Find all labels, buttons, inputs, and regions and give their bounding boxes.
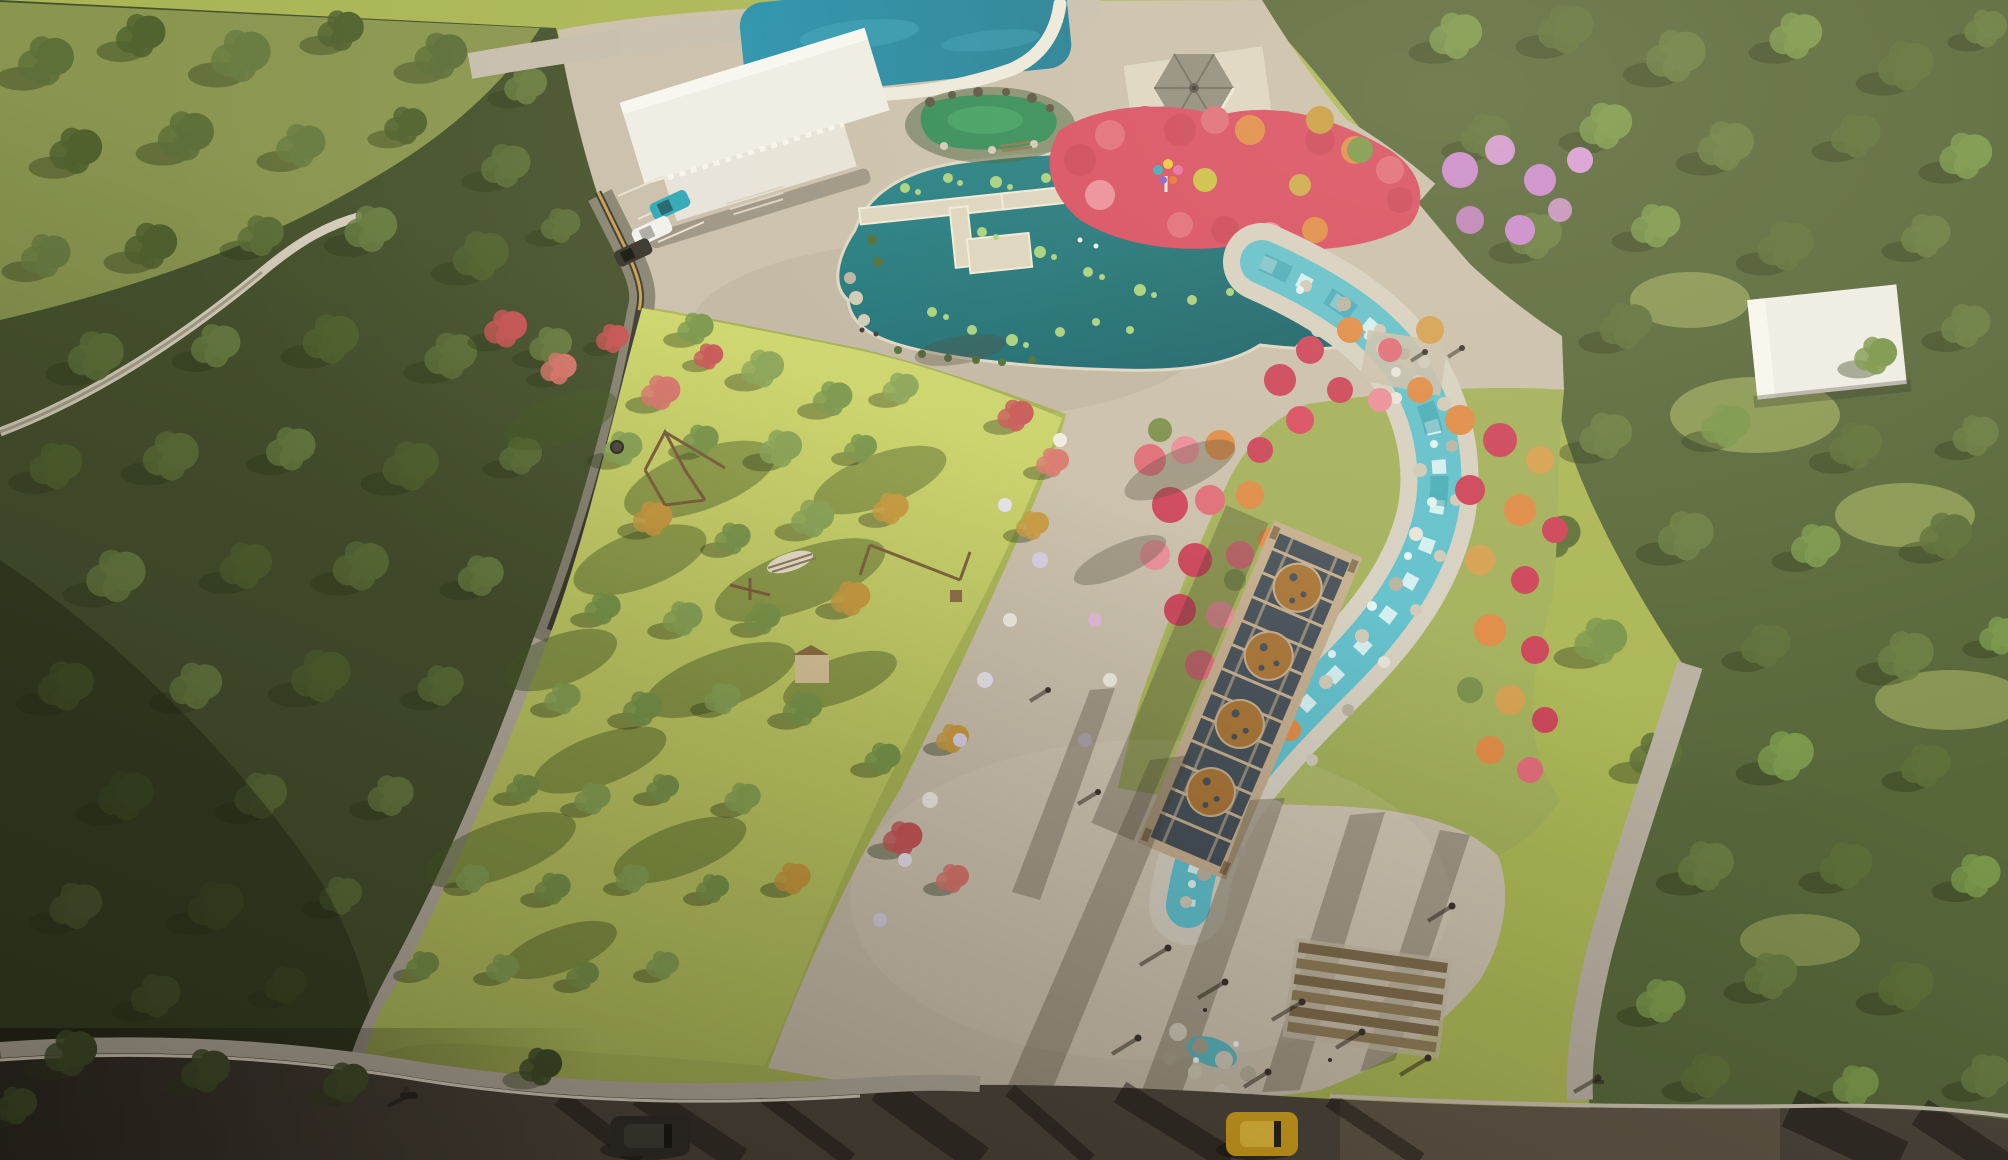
lighting-overlays [0,0,2008,1160]
lighting-overlays [0,0,2008,1160]
park-rendering: Bird's-eye architectural rendering of a … [0,0,2008,1160]
scene-canvas: Bird's-eye architectural rendering of a … [0,0,2008,1160]
